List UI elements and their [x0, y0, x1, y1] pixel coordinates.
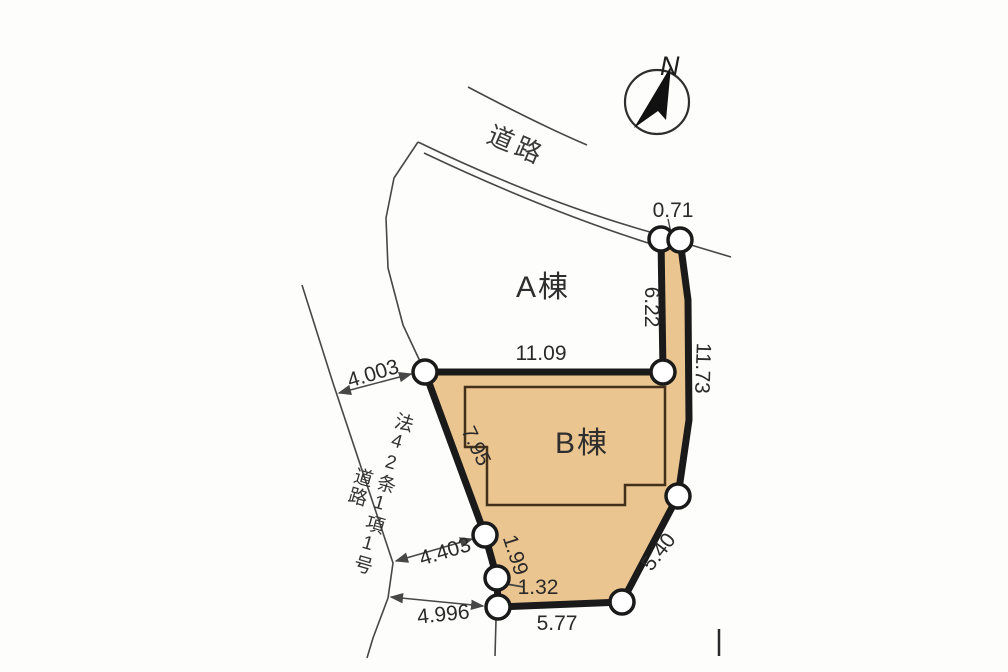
measure-southwest-lower: 1.32 — [518, 576, 559, 599]
measure-road-width-north: 4.003 — [345, 355, 402, 392]
building-b-label: B棟 — [555, 427, 609, 460]
vertex-marker — [473, 523, 497, 547]
vertex-marker — [413, 360, 437, 384]
site-plan-diagram: N 0.71 6.22 11.73 11.09 4.003 7.95 1.99 … — [0, 0, 1008, 672]
vertex-marker — [486, 595, 510, 619]
south-stub-line — [495, 620, 496, 656]
north-compass: N — [625, 51, 689, 134]
vertex-marker — [651, 360, 675, 384]
vertex-marker — [666, 484, 690, 508]
measure-road-width-middle: 4.403 — [417, 533, 474, 570]
measure-road-width-south: 4.996 — [416, 600, 471, 628]
measure-strip-left: 6.22 — [640, 287, 663, 328]
road-label: 道路 — [483, 120, 550, 171]
measure-top-width: 0.71 — [653, 199, 694, 222]
vertex-marker — [610, 590, 634, 614]
site-plan-svg: N 0.71 6.22 11.73 11.09 4.003 7.95 1.99 … — [0, 0, 1008, 672]
measure-south-side: 5.77 — [537, 612, 578, 635]
north-label: N — [660, 51, 680, 81]
measure-east-side: 11.73 — [690, 342, 715, 394]
northeast-stub-line — [691, 245, 731, 257]
vertex-marker — [668, 228, 692, 252]
lot-a-west-boundary-line — [386, 142, 425, 372]
vertex-marker — [485, 566, 509, 590]
building-a-label: A棟 — [516, 271, 570, 304]
measure-north-side: 11.09 — [516, 342, 567, 365]
